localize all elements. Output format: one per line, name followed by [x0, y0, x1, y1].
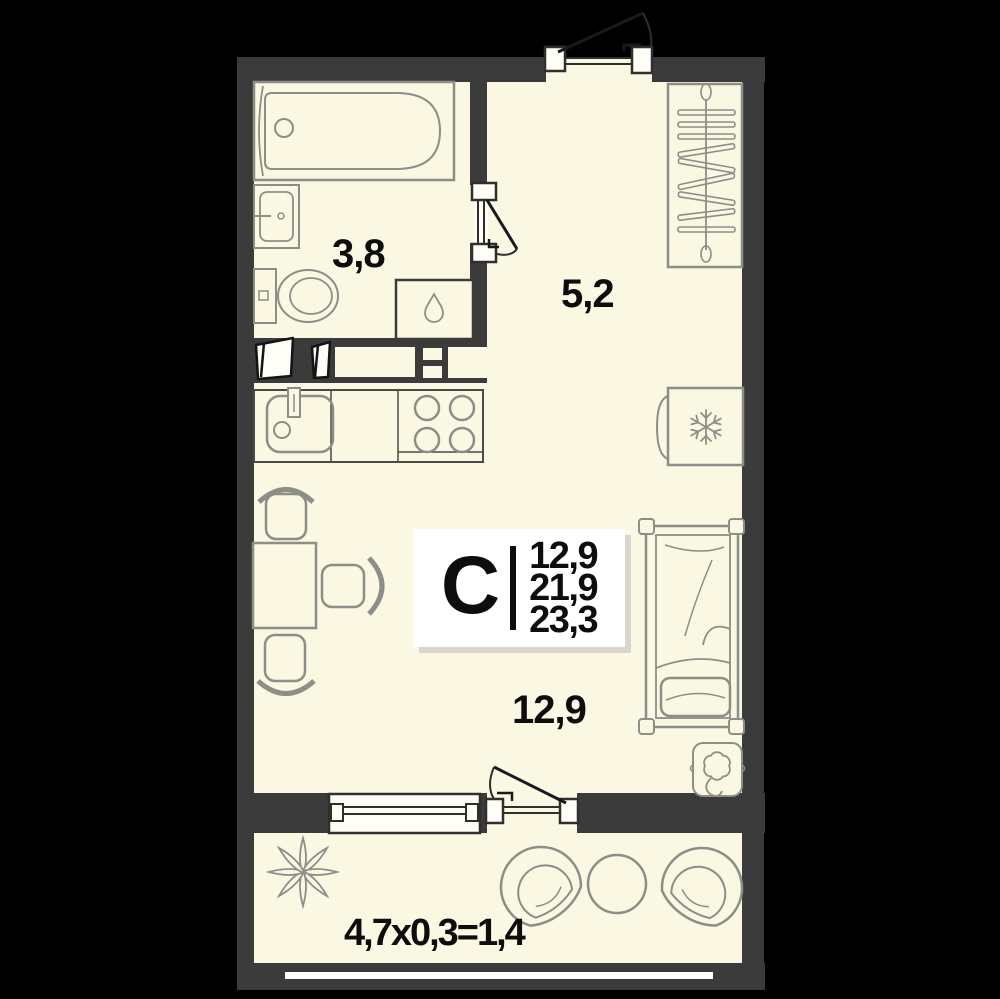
area-label-living: 12,9 — [512, 688, 586, 733]
balcony-table-icon — [588, 855, 646, 913]
floor-plan: 3,8 5,2 12,9 4,7x0,3=1,4 С 12,9 21,9 23,… — [0, 0, 1000, 999]
wardrobe-icon — [668, 84, 742, 267]
unit-info-card: С 12,9 21,9 23,3 — [413, 529, 625, 647]
dining-table-icon — [253, 543, 316, 628]
balcony-flower-icon — [269, 838, 337, 906]
bed-icon — [639, 519, 744, 734]
entry-door — [545, 13, 652, 73]
plant-pot-icon — [691, 743, 745, 796]
fridge-icon — [657, 388, 743, 465]
card-divider — [510, 546, 516, 630]
toilet-icon — [254, 269, 338, 323]
floor-plan-drawing — [0, 0, 1000, 999]
area-label-bathroom: 3,8 — [332, 232, 385, 277]
unit-areas: 12,9 21,9 23,3 — [529, 540, 597, 636]
window — [329, 794, 480, 833]
area-label-hall: 5,2 — [561, 272, 614, 317]
unit-type-letter: С — [441, 545, 498, 627]
balcony-glazing — [285, 972, 713, 979]
faucet-icon — [288, 388, 300, 417]
washing-machine-icon — [396, 280, 473, 339]
dining-chair-top-icon — [259, 490, 313, 540]
balcony-size-label: 4,7x0,3=1,4 — [344, 912, 524, 955]
total-area-value: 23,3 — [529, 604, 597, 636]
